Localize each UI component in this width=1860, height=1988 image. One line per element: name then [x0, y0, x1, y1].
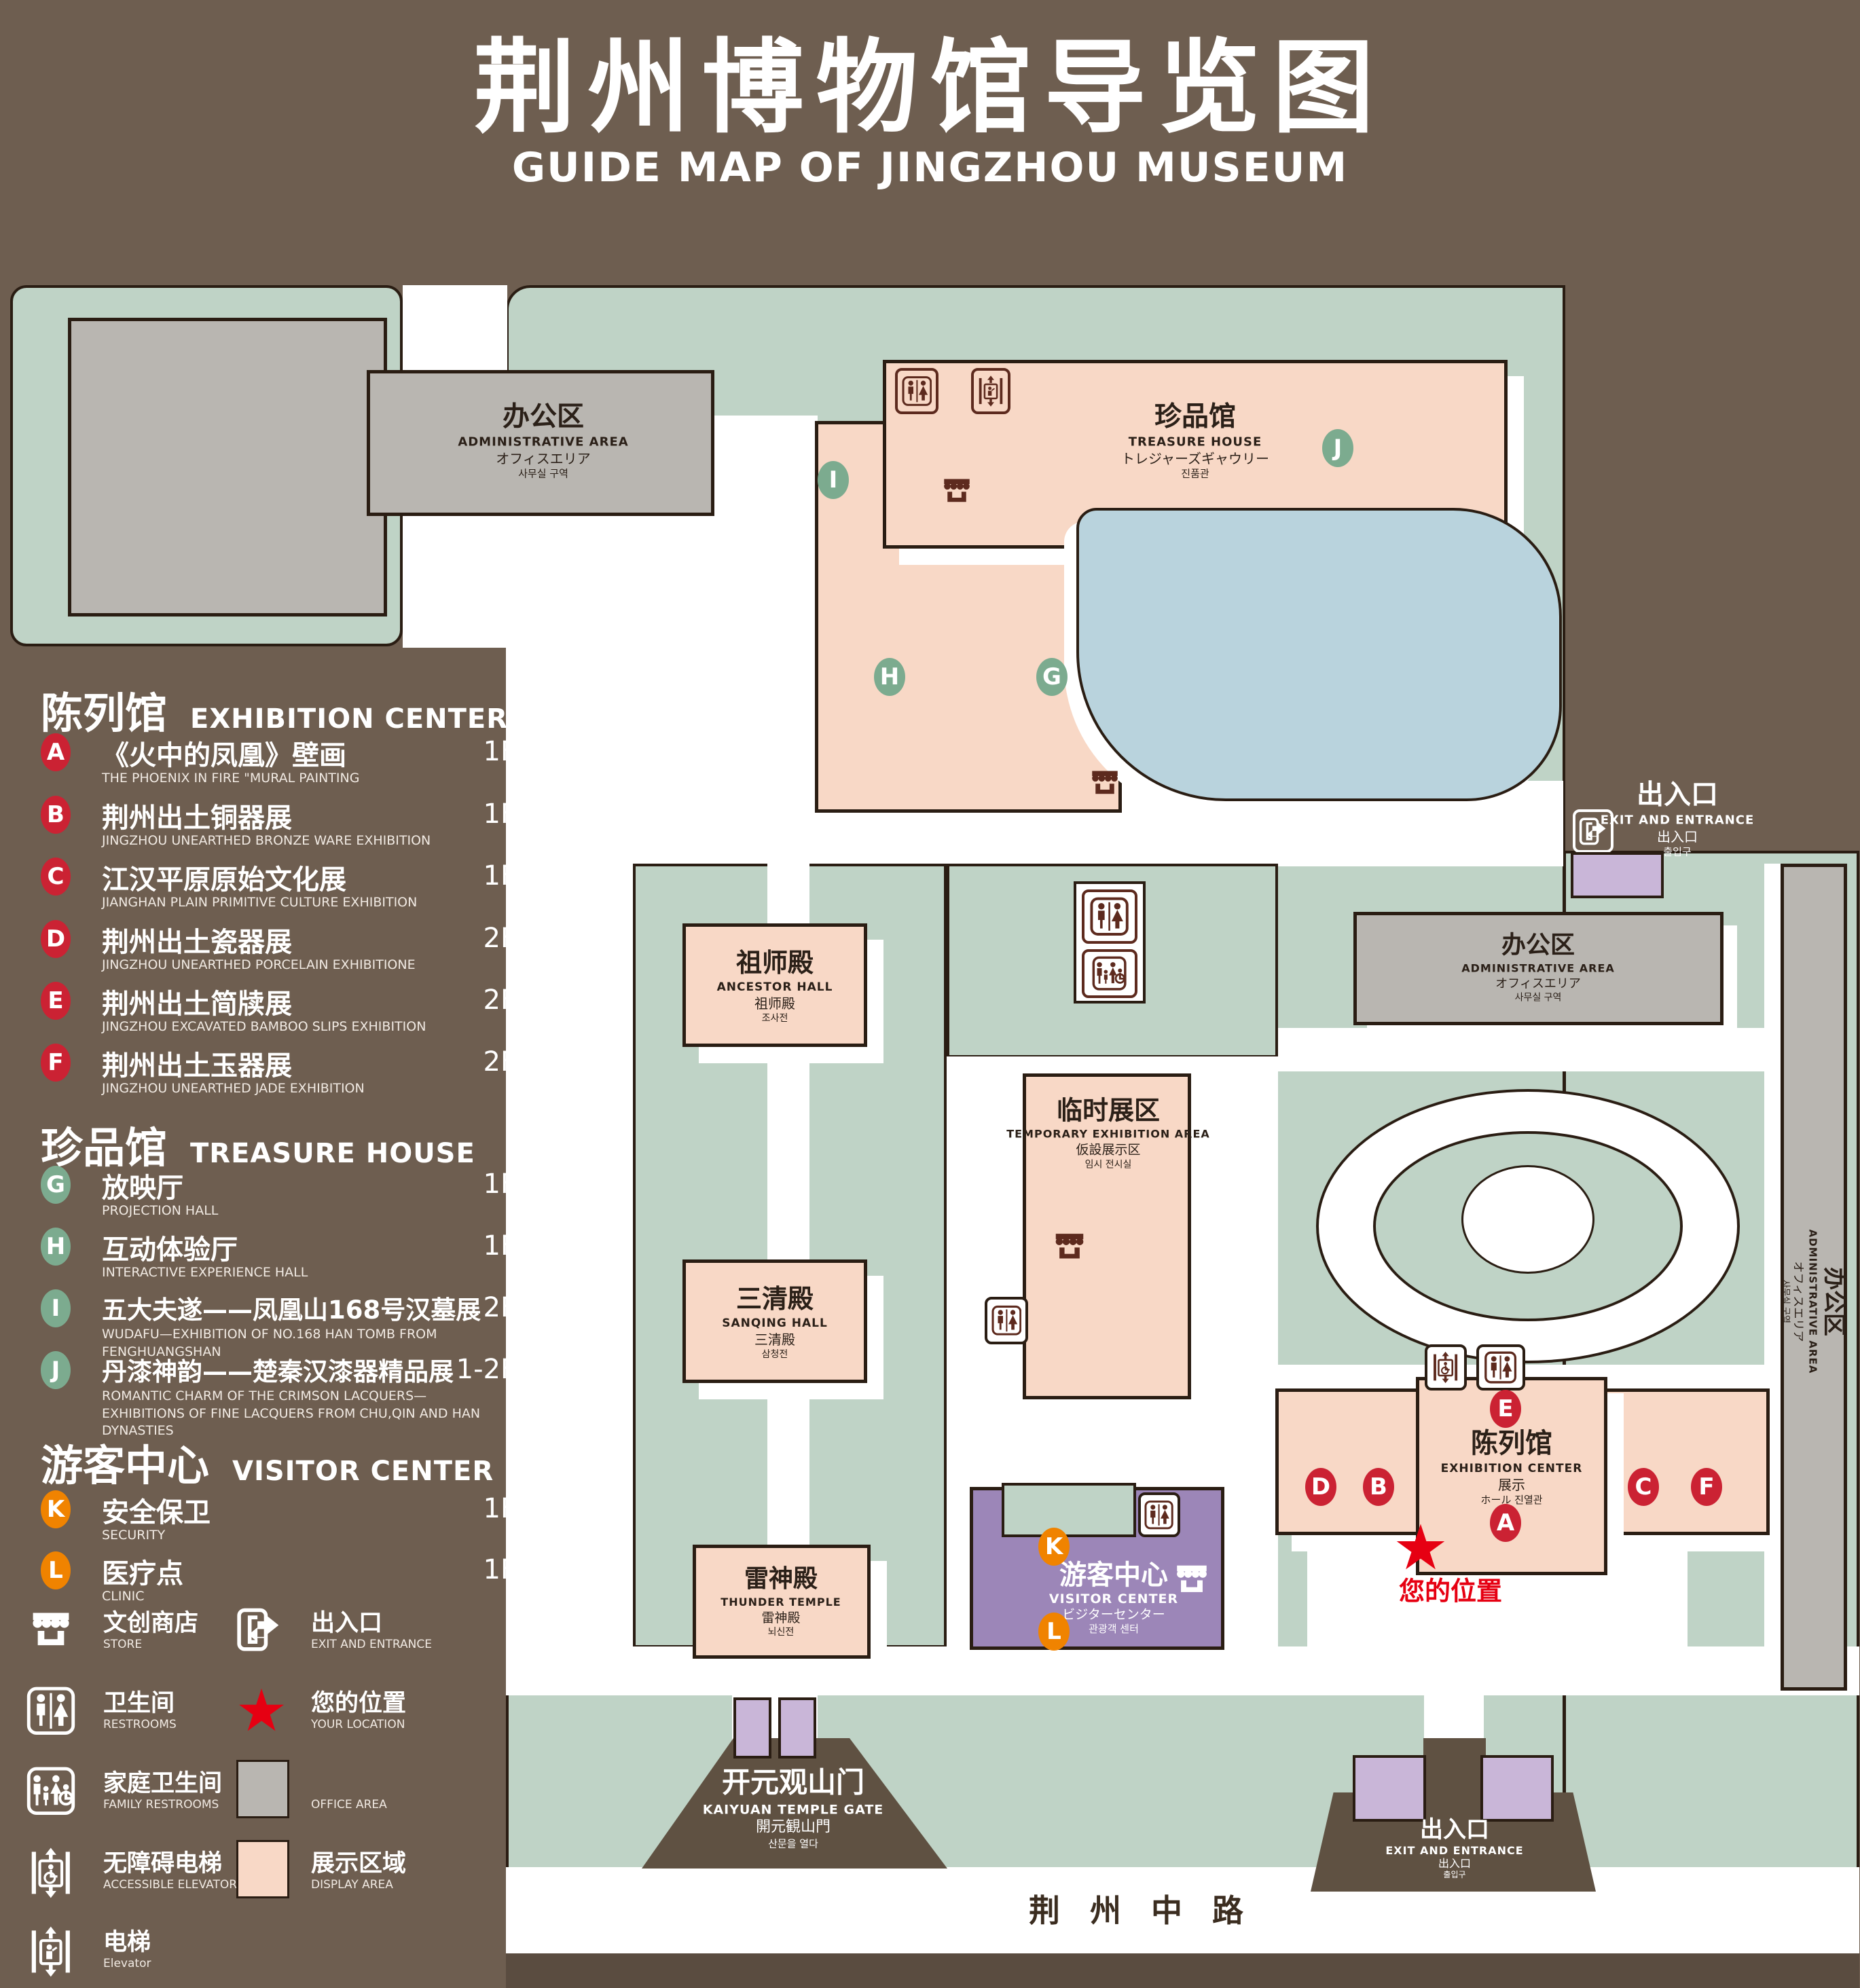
map-marker-H: H: [874, 658, 905, 696]
legend-item-B: B 荆州出土铜器展 JINGZHOU UNEARTHED BRONZE WARE…: [41, 796, 516, 857]
south-exit-pillar: [1353, 1755, 1426, 1822]
map-marker-E: E: [1490, 1390, 1521, 1428]
marker-badge-A: A: [41, 733, 71, 771]
legend-symbol-family-restrooms: 家庭卫生间 FAMILY RESTROOMS: [20, 1760, 251, 1825]
your-location-icon: ★: [234, 1680, 289, 1742]
legend-item-A: A 《火中的凤凰》壁画 THE PHOENIX IN FIRE "MURAL P…: [41, 733, 516, 794]
store-icon: [1172, 1558, 1211, 1601]
label-visitor-center: 游客中心 VISITOR CENTER ビジターセンター 관광객 센터: [1049, 1559, 1178, 1635]
your-location-star: ★: [1393, 1517, 1448, 1579]
marker-badge-J: J: [41, 1351, 71, 1389]
map-marker-C: C: [1628, 1468, 1659, 1506]
elevator-icon: [23, 1919, 79, 1984]
marker-badge-H: H: [41, 1228, 71, 1266]
map-marker-K: K: [1038, 1528, 1070, 1566]
marker-badge-I: I: [41, 1289, 71, 1327]
legend-item-C: C 江汉平原原始文化展 JIANGHAN PLAIN PRIMITIVE CUL…: [41, 858, 516, 919]
marker-badge-F: F: [41, 1044, 71, 1082]
store-icon: [20, 1600, 81, 1659]
legend-item-F: F 荆州出土玉器展 JINGZHOU UNEARTHED JADE EXHIBI…: [41, 1044, 516, 1105]
your-location-label: 您的位置: [1399, 1575, 1502, 1608]
label-exhibition-center: 陈列馆 EXHIBITION CENTER 展示 ホール 진열관: [1441, 1426, 1583, 1507]
guide-map-poster: 荆州博物馆导览图 GUIDE MAP OF JINGZHOU MUSEUM 荆 …: [0, 0, 1860, 1988]
kaiyuan-gate-pillar: [778, 1697, 816, 1759]
garden-pond: [1461, 1165, 1594, 1274]
label-kaiyuan-gate: 开元观山门 KAIYUAN TEMPLE GATE 開元観山門 산문을 열다: [703, 1764, 884, 1850]
legend-symbol-your-location: ★ 您的位置 YOUR LOCATION: [231, 1680, 489, 1745]
marker-badge-D: D: [41, 920, 71, 958]
store-icon: [1051, 1226, 1088, 1267]
path: [1278, 1028, 1764, 1071]
south-exit-pillar: [1480, 1755, 1554, 1822]
legend-symbol-display-area: 展示区域 DISPLAY AREA: [231, 1840, 489, 1905]
legend-symbol-office-area: OFFICE AREA: [231, 1760, 489, 1825]
label-thunder-temple: 雷神殿 THUNDER TEMPLE 雷神殿 뇌신전: [721, 1564, 841, 1638]
legend-section-visitor-center: 游客中心 VISITOR CENTER: [41, 1431, 494, 1492]
page-subtitle: GUIDE MAP OF JINGZHOU MUSEUM: [0, 144, 1860, 191]
label-treasure-house: 珍品馆 TREASURE HOUSE トレジャーズギャウリー 진품관: [1121, 399, 1269, 481]
label-temporary-exhibition: 临时展区 TEMPORARY EXHIBITION AREA 仮設展示区 임시 …: [1006, 1094, 1210, 1171]
pond: [1076, 508, 1562, 801]
map-marker-F: F: [1691, 1468, 1722, 1506]
building-exhibition-right-wing: [1589, 1388, 1770, 1535]
label-south-exit: 出入口 EXIT AND ENTRANCE 出入口 출입구: [1385, 1816, 1523, 1880]
legend-symbol-elevator: 电梯 Elevator: [20, 1919, 251, 1984]
restrooms-icon: [895, 368, 938, 414]
restrooms-icon: [20, 1680, 81, 1742]
path: [506, 416, 633, 1648]
marker-badge-K: K: [41, 1490, 71, 1528]
office-area-swatch: [236, 1760, 289, 1818]
legend-item-I: I 五大夫遂——凤凰山168号汉墓展 WUDAFU—EXHIBITION OF …: [41, 1289, 516, 1350]
road-band: [506, 1953, 1859, 1988]
building-admin-northwest: [68, 318, 387, 616]
exit-icon: [1573, 809, 1613, 853]
legend-symbol-restrooms: 卫生间 RESTROOMS: [20, 1680, 251, 1745]
accessible-elevator-icon: [23, 1840, 79, 1905]
map-marker-G: G: [1036, 658, 1068, 696]
legend-symbol-store: 文创商店 STORE: [20, 1600, 251, 1665]
legend-item-J: J 丹漆神韵——楚秦汉漆器精品展 ROMANTIC CHARM OF THE C…: [41, 1351, 516, 1439]
page-title: 荆州博物馆导览图: [0, 5, 1860, 153]
display-area-swatch: [236, 1840, 289, 1898]
marker-badge-L: L: [41, 1551, 71, 1589]
label-east-exit: 出入口 EXIT AND ENTRANCE 出入口 출입구: [1601, 777, 1755, 860]
map-marker-B: B: [1363, 1468, 1394, 1506]
marker-badge-C: C: [41, 858, 71, 896]
label-sanqing-hall: 三清殿 SANQING HALL 三清殿 삼청전: [722, 1283, 828, 1361]
accessible-elevator-icon: [1425, 1344, 1467, 1391]
legend-section-exhibition-center: 陈列馆 EXHIBITION CENTER: [41, 679, 508, 740]
restrooms-icon: [1476, 1344, 1525, 1391]
marker-badge-G: G: [41, 1166, 71, 1204]
label-ancestor-hall: 祖师殿 ANCESTOR HALL 祖师殿 조사전: [717, 946, 833, 1025]
restrooms-icon: [985, 1297, 1028, 1344]
elevator-icon: [971, 368, 1010, 414]
legend-item-D: D 荆州出土瓷器展 JINGZHOU UNEARTHED PORCELAIN E…: [41, 920, 516, 981]
restrooms-icon: [1082, 889, 1137, 944]
marker-badge-B: B: [41, 796, 71, 834]
legend-item-E: E 荆州出土简牍展 JINGZHOU EXCAVATED BAMBOO SLIP…: [41, 982, 516, 1043]
legend-item-H: H 互动体验厅 INTERACTIVE EXPERIENCE HALL 1F: [41, 1228, 516, 1289]
label-admin-east: 办公区 ADMINISTRATIVE AREA オフィスエリア 사무실 구역: [1461, 929, 1615, 1004]
legend-item-G: G 放映厅 PROJECTION HALL 1F: [41, 1166, 516, 1227]
road-label: 荆 州 中 路: [1029, 1891, 1253, 1932]
family-restrooms-icon: [1082, 949, 1137, 998]
restrooms-icon: [1138, 1492, 1180, 1537]
legend-item-K: K 安全保卫 SECURITY 1F: [41, 1490, 516, 1551]
legend-symbol-exit: 出入口 EXIT AND ENTRANCE: [231, 1600, 489, 1665]
label-admin-southeast: 办公区 ADMINISTRATIVE AREA オフィスエリア 사무실 구역: [1779, 1230, 1849, 1374]
family-restrooms-icon: [20, 1760, 81, 1822]
map-marker-L: L: [1038, 1613, 1070, 1651]
exit-icon: [231, 1600, 287, 1659]
legend-symbol-accessible-elevator: 无障碍电梯 ACCESSIBLE ELEVATOR: [20, 1840, 251, 1905]
map-marker-A: A: [1490, 1504, 1521, 1542]
label-admin-northwest: 办公区 ADMINISTRATIVE AREA オフィスエリア 사무실 구역: [458, 399, 628, 481]
map-marker-D: D: [1305, 1468, 1336, 1506]
marker-badge-E: E: [41, 982, 71, 1020]
kaiyuan-gate-pillar: [733, 1697, 771, 1759]
visitor-center-green-notch: [1002, 1483, 1136, 1537]
store-icon: [940, 471, 974, 511]
map-marker-I: I: [818, 461, 849, 499]
store-icon: [1088, 763, 1122, 803]
east-exit-building: [1571, 852, 1664, 898]
map-marker-J: J: [1322, 429, 1353, 467]
